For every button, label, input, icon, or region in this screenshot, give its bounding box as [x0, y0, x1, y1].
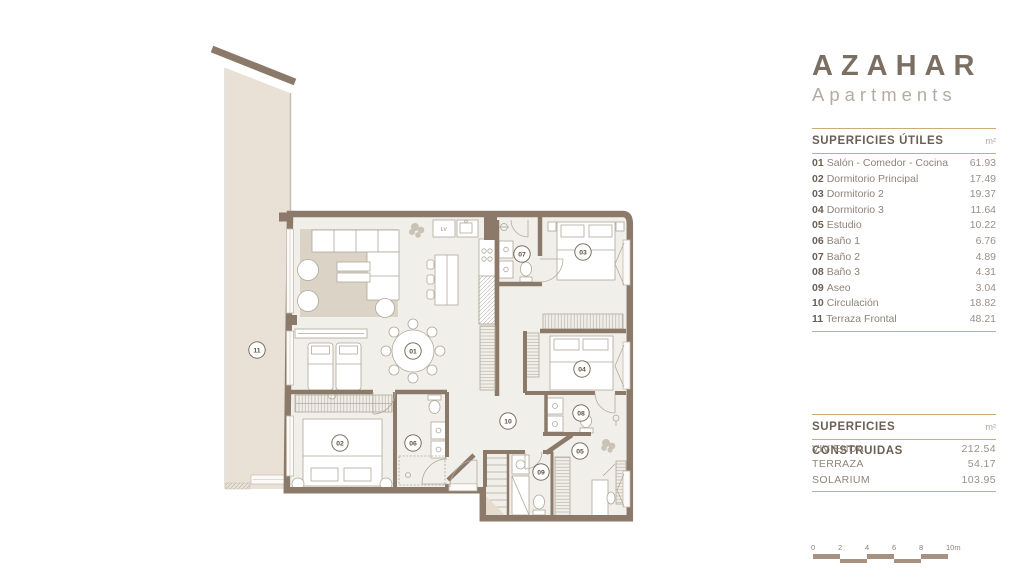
- row-label: SOLARIUM: [812, 473, 870, 488]
- table-header: SUPERFICIES CONSTRUIDAS m²: [812, 415, 996, 439]
- row-value: 212.54: [961, 442, 996, 457]
- row-label: 10Circulación: [812, 296, 879, 312]
- divider: [812, 331, 996, 332]
- row-label: 04Dormitorio 3: [812, 203, 884, 219]
- room-label-03: 03: [575, 244, 591, 260]
- table-row: 05Estudio10.22: [812, 218, 996, 234]
- svg-text:02: 02: [336, 441, 344, 448]
- room-label-01: 01: [405, 343, 421, 359]
- svg-text:08: 08: [577, 411, 585, 418]
- row-label: 08Baño 3: [812, 265, 860, 281]
- room-label-04: 04: [574, 361, 590, 377]
- room-label-11: 11: [249, 342, 265, 358]
- svg-text:11: 11: [253, 348, 260, 355]
- svg-text:01: 01: [409, 349, 417, 356]
- scale-tick: 4: [865, 543, 869, 552]
- row-label: 06Baño 1: [812, 234, 860, 250]
- table-row: 10Circulación18.82: [812, 296, 996, 312]
- brand-subtitle: Apartments: [812, 84, 996, 106]
- table-row: SOLARIUM103.95: [812, 473, 996, 488]
- unit-label: m²: [986, 415, 997, 439]
- row-value: 18.82: [970, 296, 996, 312]
- side-table: [376, 299, 395, 318]
- coffee-table: [337, 262, 370, 271]
- wardrobe: [543, 314, 623, 329]
- table-header: SUPERFICIES ÚTILES m²: [812, 129, 996, 153]
- table-row: 08Baño 34.31: [812, 265, 996, 281]
- row-value: 48.21: [970, 312, 996, 328]
- table-row: 06Baño 16.76: [812, 234, 996, 250]
- row-value: 54.17: [968, 457, 996, 472]
- table-row: 01Salón - Comedor - Cocina61.93: [812, 156, 996, 172]
- row-value: 6.76: [976, 234, 996, 250]
- room-label-02: 02: [332, 435, 348, 451]
- scale-segment: [921, 554, 948, 559]
- svg-text:04: 04: [578, 367, 586, 374]
- armchair: [298, 291, 319, 312]
- scale-tick: 0: [811, 543, 815, 552]
- svg-text:05: 05: [576, 449, 584, 456]
- room-label-07: 07: [514, 246, 530, 262]
- unit-label: m²: [986, 129, 997, 153]
- table-row: 04Dormitorio 311.64: [812, 203, 996, 219]
- brand-block: AZAHAR Apartments: [812, 50, 996, 106]
- room-label-10: 10: [500, 413, 516, 429]
- row-label: 09Aseo: [812, 281, 851, 297]
- terrace: [212, 49, 295, 489]
- row-label: 03Dormitorio 2: [812, 187, 884, 203]
- superficies-utiles-rows: 01Salón - Comedor - Cocina61.9302Dormito…: [812, 154, 996, 331]
- row-value: 3.04: [976, 281, 996, 297]
- room-label-06: 06: [405, 435, 421, 451]
- table-row: 11Terraza Frontal48.21: [812, 312, 996, 328]
- row-value: 10.22: [970, 218, 996, 234]
- lv-annotation: LV: [441, 227, 448, 233]
- scale-segment: [813, 554, 840, 559]
- superficies-utiles-table: SUPERFICIES ÚTILES m² 01Salón - Comedor …: [812, 128, 996, 332]
- scale-tick: 2: [838, 543, 842, 552]
- table-row: 07Baño 24.89: [812, 250, 996, 266]
- row-label: TERRAZA: [812, 457, 864, 472]
- svg-text:09: 09: [537, 470, 545, 477]
- row-value: 17.49: [970, 172, 996, 188]
- row-label: 02Dormitorio Principal: [812, 172, 918, 188]
- row-value: 19.37: [970, 187, 996, 203]
- row-value: 61.93: [970, 156, 996, 172]
- room-label-08: 08: [573, 405, 589, 421]
- scale-tick: 8: [919, 543, 923, 552]
- svg-text:10: 10: [504, 419, 512, 426]
- scale-tick: 10m: [946, 543, 961, 552]
- scale-segment: [894, 559, 921, 564]
- scale-segment: [867, 554, 894, 559]
- table-row: 09Aseo3.04: [812, 281, 996, 297]
- row-value: 4.89: [976, 250, 996, 266]
- svg-text:06: 06: [409, 441, 417, 448]
- svg-text:07: 07: [518, 252, 526, 259]
- row-label: 11Terraza Frontal: [812, 312, 897, 328]
- floor-plan: LV 01 02 03 04 05 06 07 08 09 10 11: [195, 24, 665, 536]
- table-row: 02Dormitorio Principal17.49: [812, 172, 996, 188]
- scale-segment: [840, 559, 867, 564]
- divider: [812, 491, 996, 492]
- row-value: 4.31: [976, 265, 996, 281]
- row-value: 103.95: [961, 473, 996, 488]
- superficies-construidas-table: SUPERFICIES CONSTRUIDAS m² VIVIENDA212.5…: [812, 414, 996, 492]
- floorplan-sheet: LV 01 02 03 04 05 06 07 08 09 10 11 AZAH…: [0, 0, 1024, 579]
- scale-tick: 6: [892, 543, 896, 552]
- row-label: 05Estudio: [812, 218, 862, 234]
- row-value: 11.64: [971, 203, 997, 219]
- svg-text:03: 03: [579, 250, 587, 257]
- room-label-09: 09: [533, 464, 549, 480]
- room-label-05: 05: [572, 443, 588, 459]
- table-title: SUPERFICIES ÚTILES: [812, 129, 944, 153]
- row-label: VIVIENDA: [812, 442, 864, 457]
- coffee-table: [337, 273, 370, 282]
- brand-title: AZAHAR: [812, 50, 996, 82]
- table-row: 03Dormitorio 219.37: [812, 187, 996, 203]
- row-label: 07Baño 2: [812, 250, 860, 266]
- scale-bar: 0246810m: [810, 543, 970, 569]
- row-label: 01Salón - Comedor - Cocina: [812, 156, 948, 172]
- armchair: [298, 260, 319, 281]
